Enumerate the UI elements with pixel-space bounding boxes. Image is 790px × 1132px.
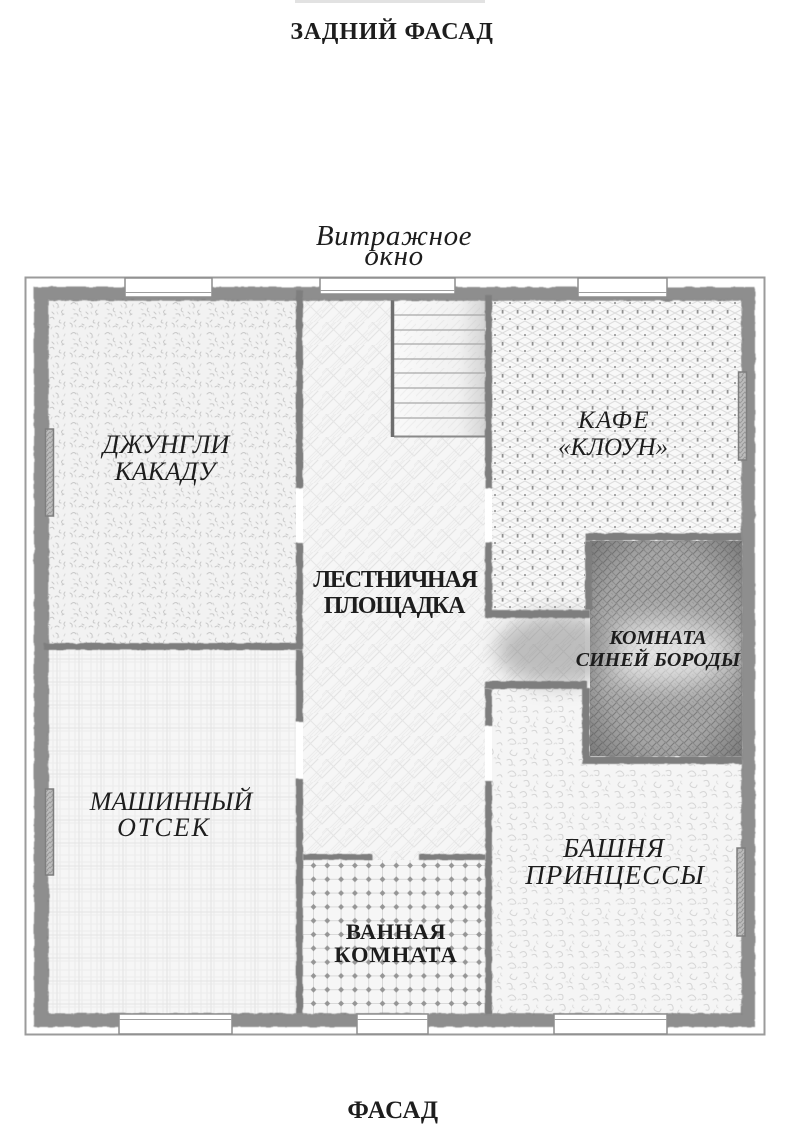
svg-text:ЗАДНИЙ ФАСАД: ЗАДНИЙ ФАСАД [290,19,493,45]
svg-text:«КЛОУН»: «КЛОУН» [558,434,668,461]
svg-text:ФАСАД: ФАСАД [347,1097,438,1124]
svg-text:ВАННАЯ: ВАННАЯ [346,919,446,944]
svg-text:ОТСЕК: ОТСЕК [117,813,211,842]
svg-text:КАФЕ: КАФЕ [577,407,650,434]
svg-text:ЛЕСТНИЧНАЯ: ЛЕСТНИЧНАЯ [313,567,477,593]
svg-text:БАШНЯ: БАШНЯ [562,833,665,863]
svg-text:ПРИНЦЕССЫ: ПРИНЦЕССЫ [524,860,705,890]
svg-text:КОМНАТА: КОМНАТА [608,627,706,649]
svg-text:окно: окно [364,240,423,272]
svg-text:СИНЕЙ БОРОДЫ: СИНЕЙ БОРОДЫ [576,647,741,671]
svg-text:КАКАДУ: КАКАДУ [114,457,219,486]
svg-text:МАШИННЫЙ: МАШИННЫЙ [89,787,254,816]
svg-text:ДЖУНГЛИ: ДЖУНГЛИ [100,430,231,459]
svg-text:КОМНАТА: КОМНАТА [334,942,457,967]
svg-text:ПЛОЩАДКА: ПЛОЩАДКА [324,593,466,619]
